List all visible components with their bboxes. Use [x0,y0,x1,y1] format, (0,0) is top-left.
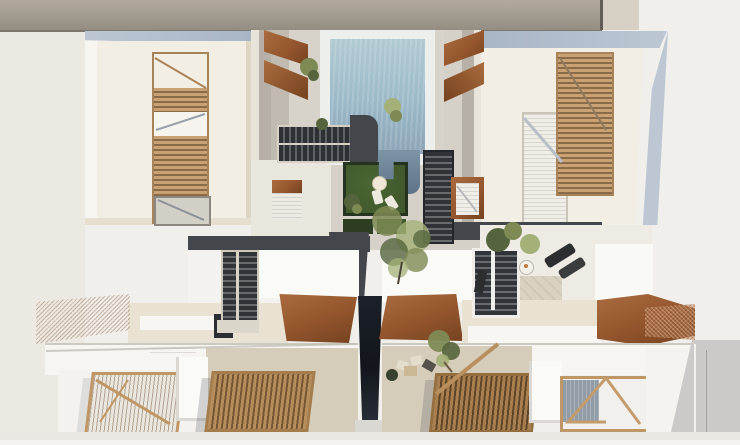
pool-plant-left-2 [308,70,319,81]
light-timber-pergola-left [84,372,186,435]
top-roof-strip-side [600,0,639,30]
terrace-chair-2 [410,355,422,366]
courtyard-wall-right-inner [434,30,444,170]
dense-timber-pergola-left [204,371,315,432]
right-terrace-plant-3 [520,234,540,254]
small-tree-canopy-3 [436,354,449,367]
lawn-shrub-small [352,204,362,214]
courtyard-stair-landing [350,115,378,170]
lower-right-stairs-divider [491,250,495,310]
lower-left-roof-vents [150,348,196,355]
bottom-street-highlight [0,440,740,445]
architectural-render-canvas [0,0,740,445]
alley-passage [357,296,383,424]
lower-left-stairs [221,250,259,326]
left-pergola-louvers-lower [154,136,207,196]
dense-timber-pergola-right [429,373,539,433]
corten-canopy-far-right-mesh [645,304,695,340]
right-building-parapet-top [481,31,667,48]
right-building-parapet-right [640,31,668,225]
screen-deck-blue-gray [563,380,599,422]
pool-plant-lower [316,118,328,130]
left-pergola-deck [154,196,211,226]
corten-canopy-mid-right [379,294,463,343]
white-volume-right [529,361,562,423]
lower-left-roof-bright [255,250,359,298]
top-roof-strip [0,0,602,32]
left-pergola-balcony [154,112,207,136]
corten-stair-treads [456,183,479,215]
corten-mini-stair-top [272,180,302,193]
pool-plant-corner-2 [390,110,402,122]
white-mini-stair [272,193,302,219]
gray-strip-seam [706,350,707,445]
right-terrace-table-bowl [524,264,528,268]
lower-left-stairs-divider [236,252,239,320]
lower-right-roof-bright-right [595,244,653,302]
corten-canopy-far-left [36,294,130,344]
lower-left-stairs-landing [217,320,259,333]
gray-strip-highlight [694,344,696,445]
white-volume-left [176,357,208,421]
corten-canopy-mid-left [277,294,357,343]
right-pergola-louvers [556,52,614,196]
terrace-plant-pot [386,369,398,381]
right-terrace-plant-2 [504,222,522,240]
tree-canopy-5 [388,258,408,278]
left-pergola-louvers-upper [154,88,207,112]
lawn-strip-left [343,219,373,234]
terrace-table [404,366,417,376]
tree-canopy-6 [413,230,431,248]
left-building-edge-left [85,41,97,225]
courtyard-stair-flight-lower [277,143,357,163]
